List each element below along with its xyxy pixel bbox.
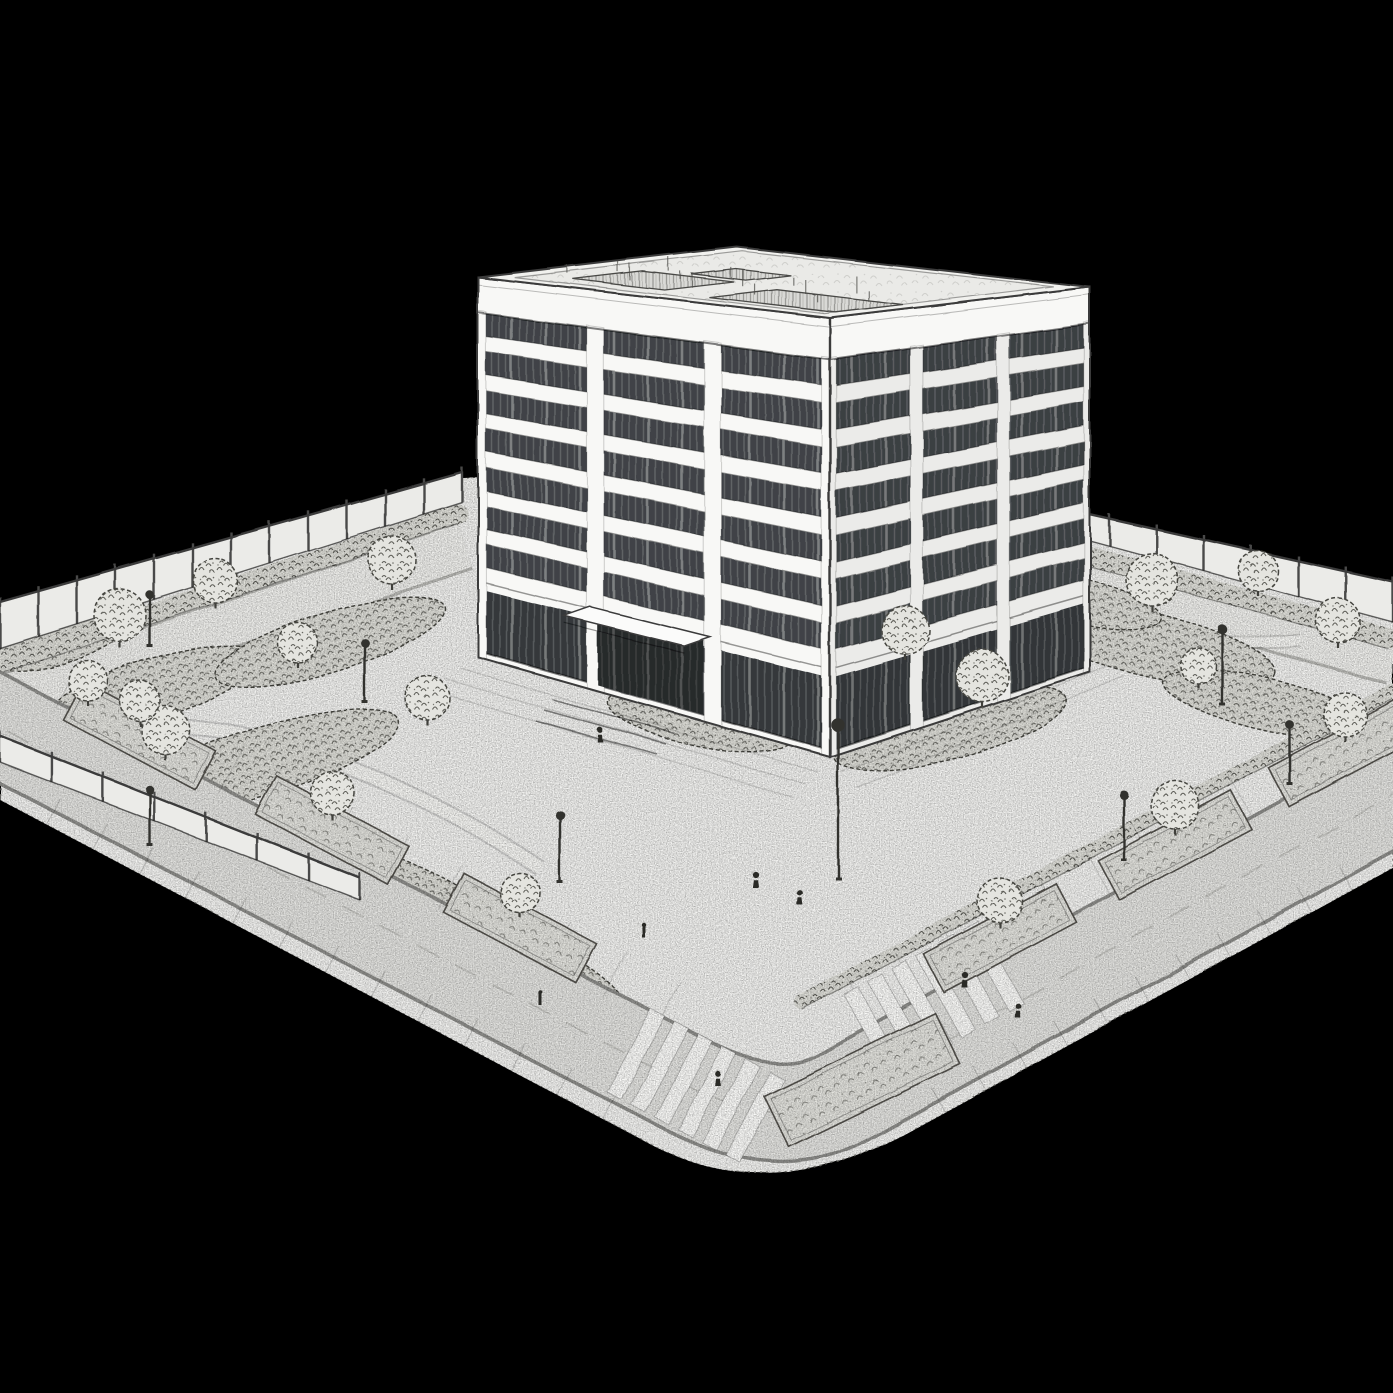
- pedestrian-body: [597, 735, 603, 742]
- lamp-head: [1119, 790, 1128, 799]
- pedestrian-body: [962, 980, 968, 988]
- lamp-head: [146, 786, 155, 795]
- pedestrian-head: [715, 1071, 721, 1077]
- pedestrian-body: [797, 898, 803, 905]
- facade-pier: [704, 341, 721, 726]
- lamp-head: [1217, 624, 1227, 634]
- lamp-head: [146, 591, 154, 599]
- bollard-cap: [641, 922, 645, 926]
- lamp-head: [831, 718, 845, 732]
- lamp-head: [555, 810, 564, 819]
- pedestrian-body: [1015, 1011, 1021, 1018]
- bollard-cap: [538, 990, 542, 994]
- lamp-head: [361, 639, 370, 648]
- pedestrian-body: [752, 879, 758, 887]
- pedestrian-head: [797, 890, 803, 896]
- pedestrian-head: [962, 972, 968, 978]
- pedestrian-head: [752, 871, 758, 877]
- facade-pier: [822, 356, 830, 757]
- lamp-head: [1286, 721, 1295, 730]
- pedestrian-head: [1015, 1003, 1021, 1009]
- facade-pier: [478, 311, 486, 659]
- pedestrian-head: [597, 727, 603, 733]
- architectural-sketch: Pencil sketch of a mid-rise building on …: [0, 0, 1393, 1393]
- pedestrian-body: [715, 1079, 721, 1086]
